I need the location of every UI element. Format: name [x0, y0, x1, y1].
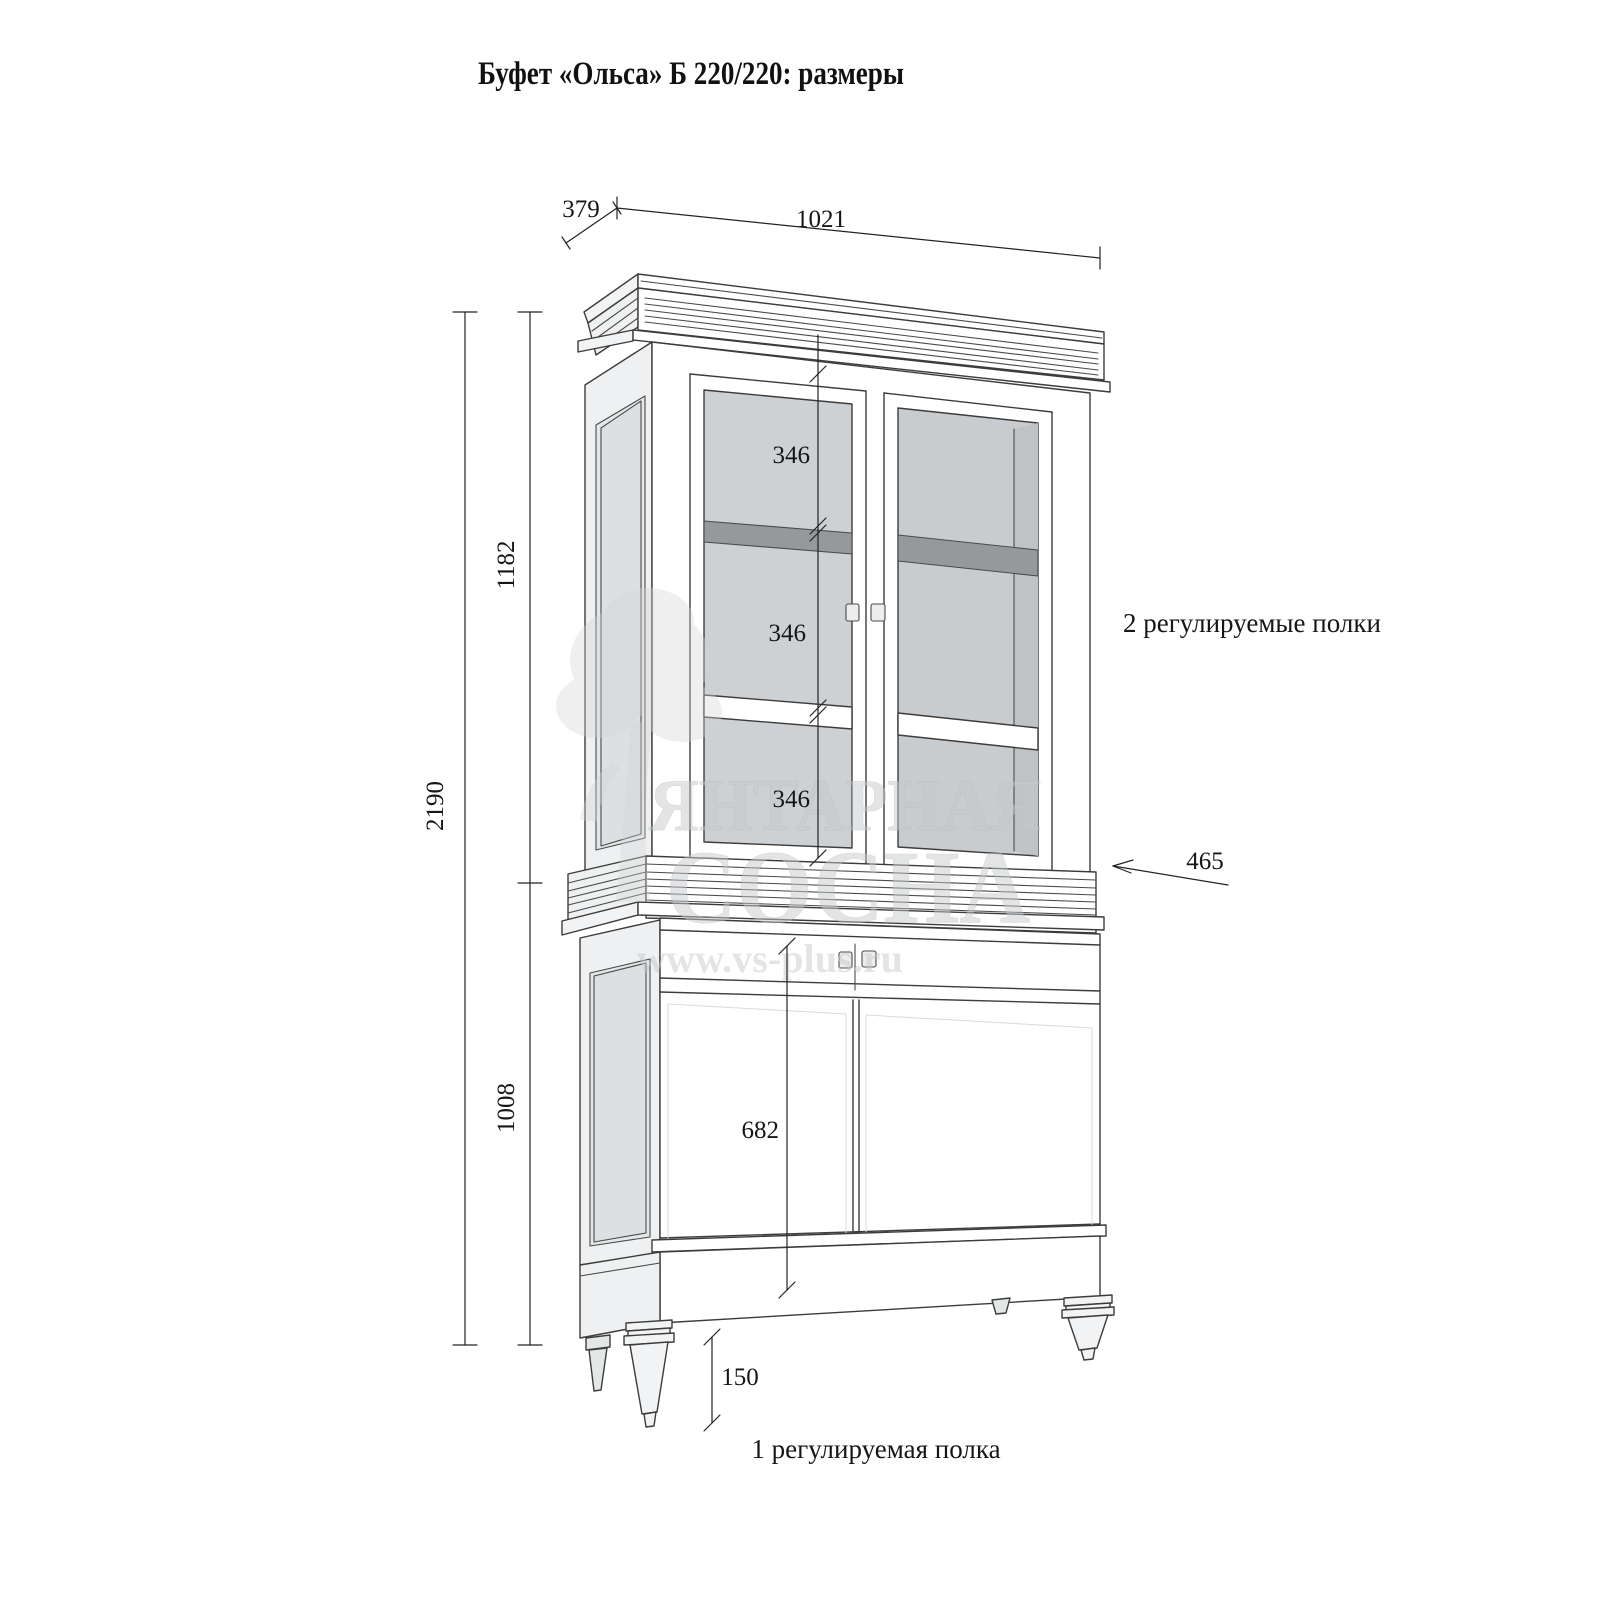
dim-top-depth-label: 379: [562, 196, 600, 223]
watermark-url: www.vs-plus.ru: [637, 936, 903, 981]
dim-total-height: 2190: [422, 312, 477, 1345]
watermark-line2: СОСНА: [666, 830, 1030, 945]
dim-lower-height-label: 1008: [493, 1083, 520, 1133]
dim-lower-depth: 465: [1113, 848, 1228, 885]
dim-shelf-gap-3-label: 346: [773, 786, 811, 813]
dim-leg-height-label: 150: [721, 1364, 759, 1391]
leg-front-left: [624, 1320, 674, 1427]
leg-front-right: [1062, 1295, 1114, 1360]
dim-door-height-label: 682: [742, 1117, 780, 1144]
door-knob-right: [871, 604, 885, 621]
note-upper-shelves: 2 регулируемые полки: [1123, 608, 1381, 638]
dim-upper-height: 1182: [493, 312, 542, 883]
apron-front: [660, 1236, 1100, 1323]
dim-lower-height: 1008: [493, 883, 542, 1345]
door-knob-left: [846, 604, 859, 621]
dim-lower-depth-label: 465: [1186, 848, 1224, 875]
dim-width-label: 1021: [796, 206, 846, 233]
leg-back-left: [586, 1335, 610, 1391]
lower-cabinet: [580, 918, 1114, 1427]
dim-shelf-gap-2-label: 346: [769, 620, 807, 647]
leg-back-right: [992, 1298, 1010, 1314]
diagram-canvas: ЯНТАРНАЯ СОСНА www.vs-plus.ru 379 1021 2…: [0, 0, 1600, 1600]
dim-shelf-gap-1-label: 346: [773, 442, 811, 469]
note-lower-shelf: 1 регулируемая полка: [751, 1434, 1000, 1464]
dim-total-height-label: 2190: [422, 781, 449, 831]
dim-leg-height: 150: [704, 1329, 759, 1431]
dim-top-width: 1021: [617, 197, 1100, 269]
dim-top-depth: 379: [562, 196, 621, 249]
buffet-dimension-diagram: ЯНТАРНАЯ СОСНА www.vs-plus.ru 379 1021 2…: [0, 0, 1600, 1600]
page-title: Буфет «Ольса» Б 220/220: размеры: [478, 56, 904, 92]
dim-upper-height-label: 1182: [493, 540, 520, 589]
